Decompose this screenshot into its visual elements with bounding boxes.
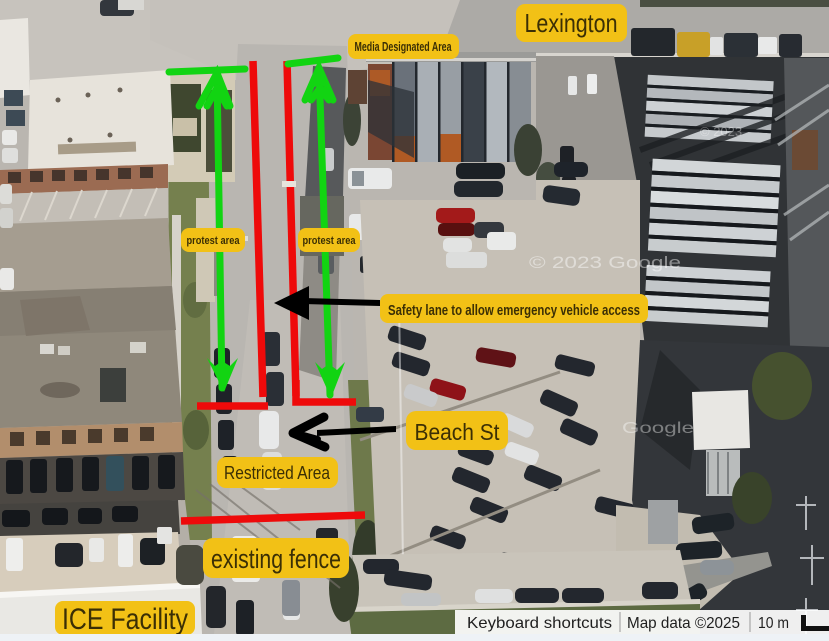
svg-text:© 2023 Google: © 2023 Google [529,253,681,272]
svg-text:10 m: 10 m [758,615,789,632]
svg-text:existing fence: existing fence [211,544,341,574]
svg-text:protest area: protest area [187,235,241,247]
svg-text:Media Designated Area: Media Designated Area [355,39,453,54]
svg-text:Keyboard shortcuts: Keyboard shortcuts [467,615,612,632]
svg-text:Google: Google [622,420,694,437]
svg-text:ICE Facility: ICE Facility [62,603,188,636]
svg-text:Lexington: Lexington [525,8,618,38]
svg-text:Beach St: Beach St [415,419,501,445]
svg-text:© 2023: © 2023 [700,124,742,139]
svg-text:Safety lane to allow emergency: Safety lane to allow emergency vehicle a… [388,302,640,319]
svg-text:Map data ©2025: Map data ©2025 [627,615,740,632]
svg-text:Restricted Area: Restricted Area [224,463,331,483]
svg-text:protest area: protest area [303,235,357,247]
